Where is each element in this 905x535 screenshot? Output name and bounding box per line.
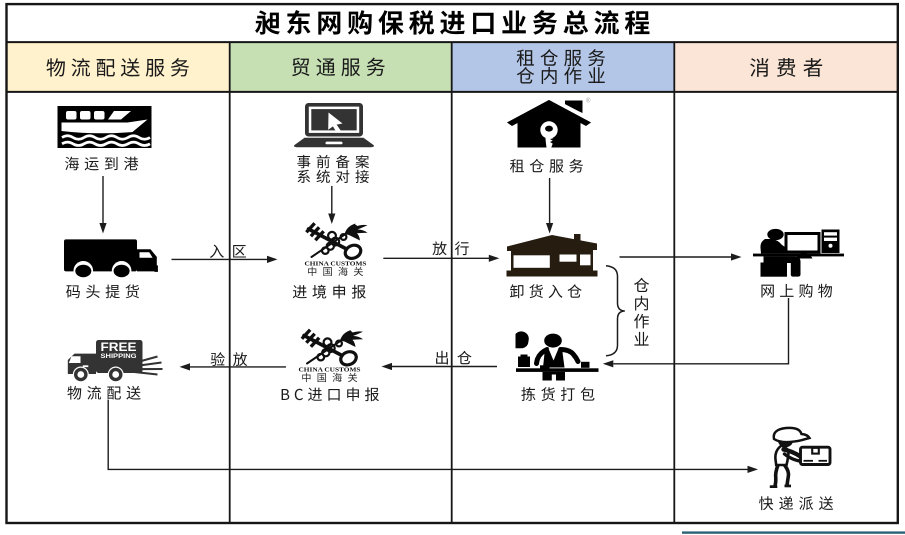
svg-text:CHINA CUSTOMS: CHINA CUSTOMS bbox=[299, 367, 361, 374]
svg-text:®: ® bbox=[586, 98, 591, 105]
svg-text:CHINA CUSTOMS: CHINA CUSTOMS bbox=[305, 261, 367, 268]
svg-text:FREE: FREE bbox=[101, 342, 137, 354]
svg-text:SHIPPING: SHIPPING bbox=[101, 353, 137, 360]
